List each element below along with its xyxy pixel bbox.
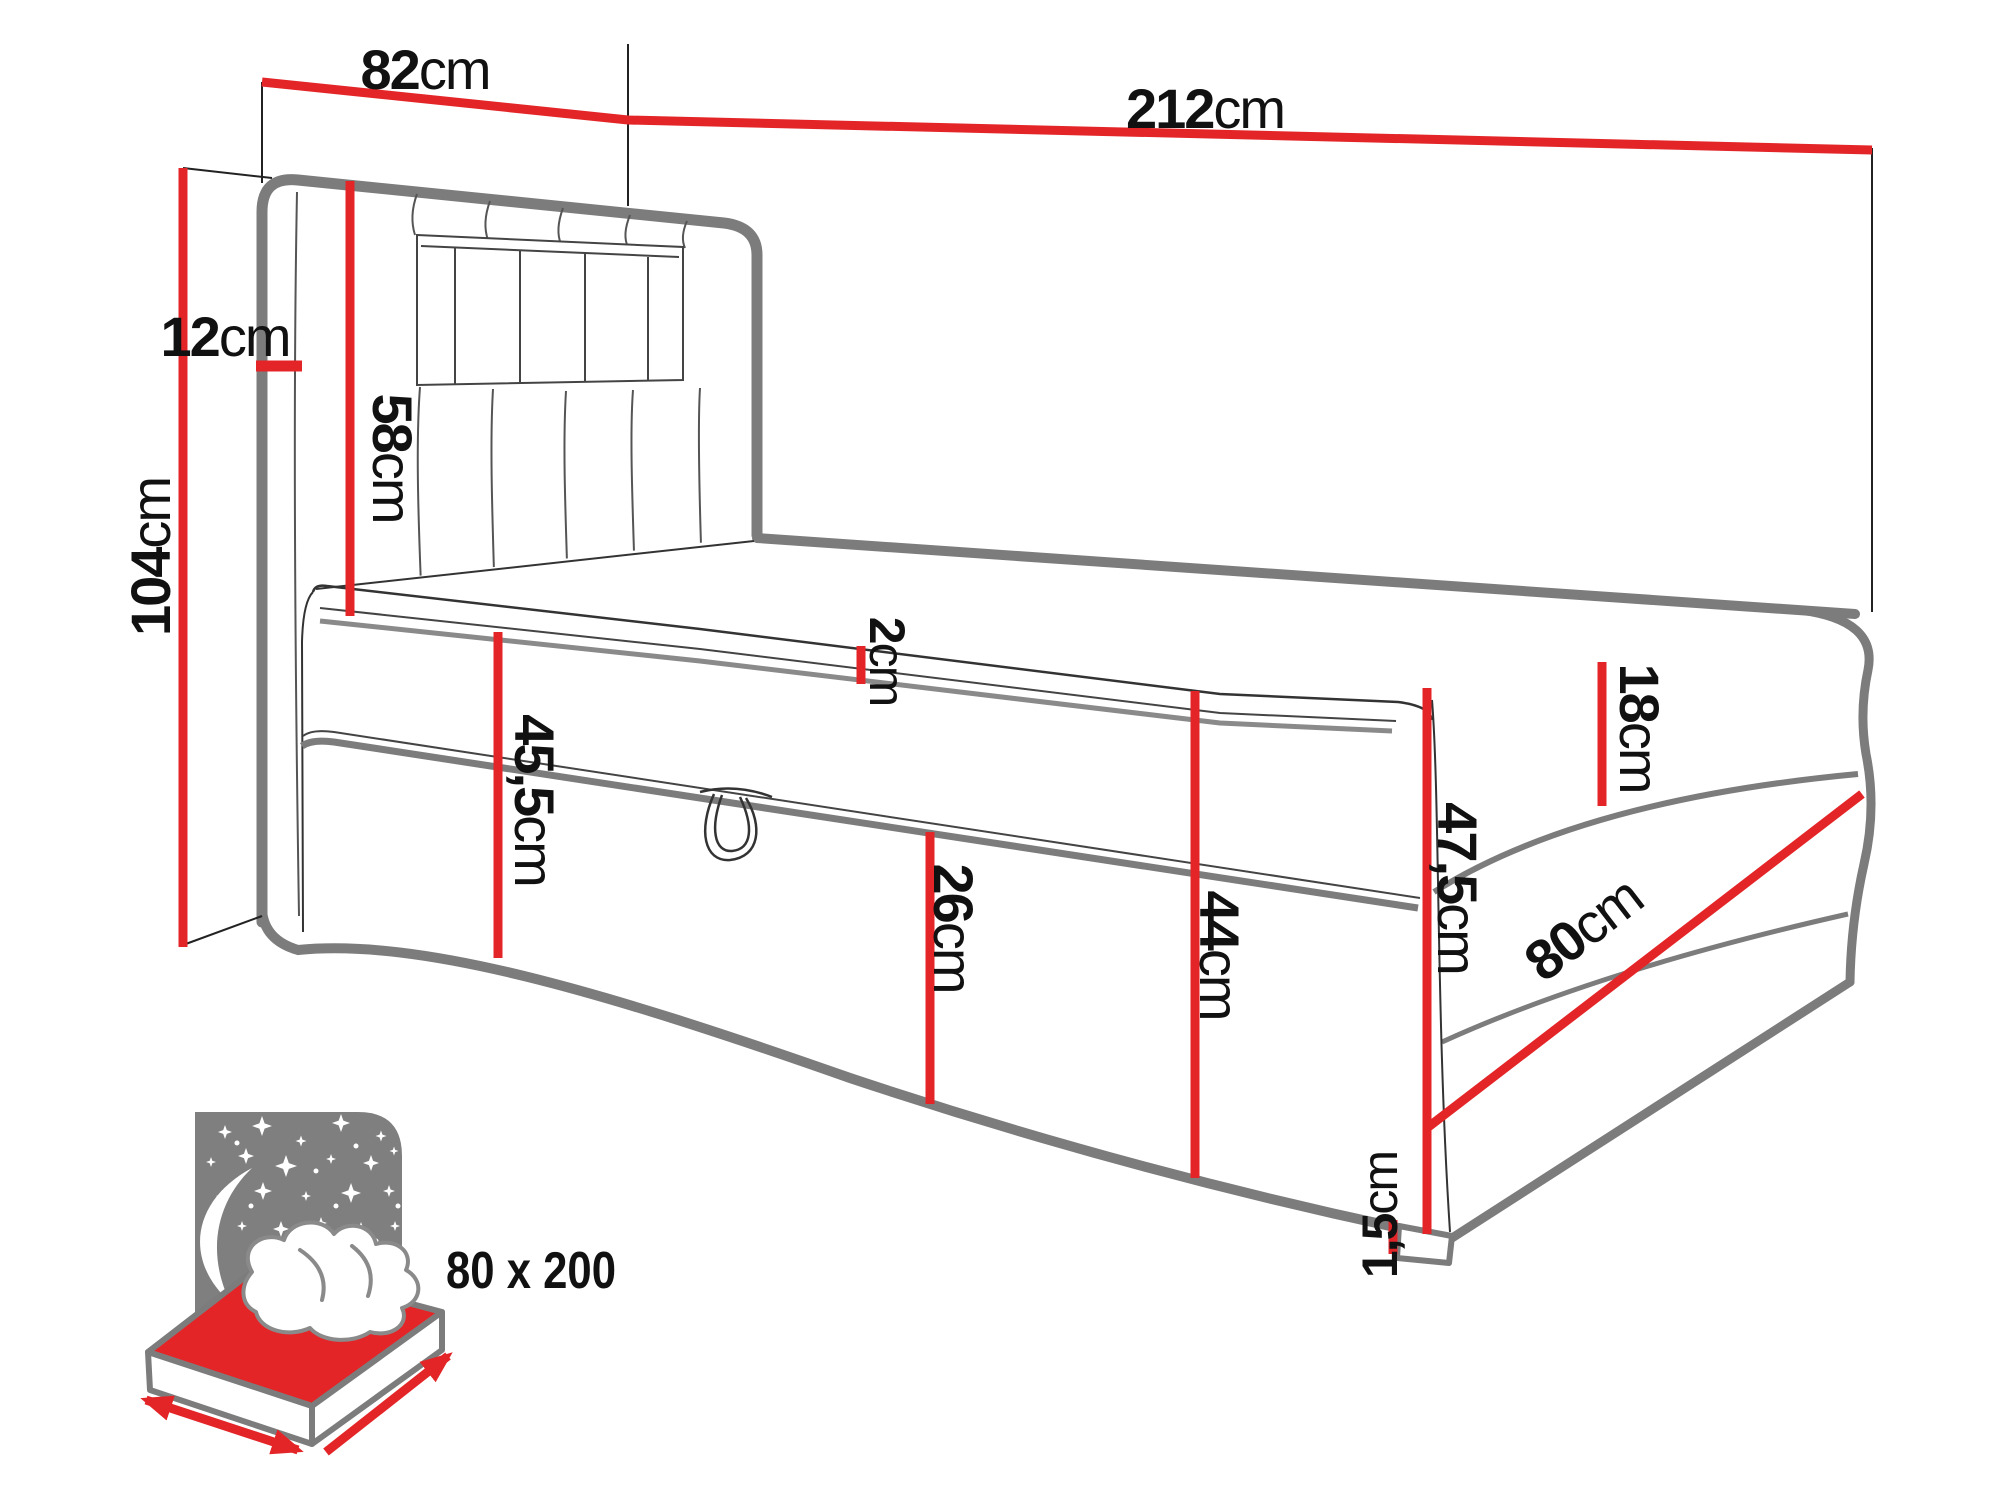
icon-bed xyxy=(146,1223,448,1452)
ext-line-104-top xyxy=(183,168,272,178)
label-104cm: 104cm xyxy=(119,478,182,636)
label-47-5cm: 47,5cm xyxy=(1426,802,1489,974)
label-44cm: 44cm xyxy=(1188,891,1251,1020)
label-2cm: 2cm xyxy=(859,617,915,705)
label-12cm: 12cm xyxy=(161,305,290,368)
label-58cm: 58cm xyxy=(361,394,424,523)
label-18cm: 18cm xyxy=(1608,664,1671,793)
technical-drawing: 82cm 212cm 104cm 12cm 58cm 2cm 45,5cm 26… xyxy=(0,0,2000,1500)
size-icon: 80 x 200 xyxy=(146,1112,616,1452)
dim-82-212-line xyxy=(262,82,1872,150)
size-badge-label: 80 x 200 xyxy=(446,1242,616,1300)
label-212cm: 212cm xyxy=(1126,77,1284,140)
label-26cm: 26cm xyxy=(922,864,985,993)
bed-dimension-diagram: 82cm 212cm 104cm 12cm 58cm 2cm 45,5cm 26… xyxy=(0,0,2000,1500)
headboard-panel xyxy=(417,235,683,385)
label-82cm: 82cm xyxy=(361,38,490,101)
ext-line-104-bottom xyxy=(183,916,262,945)
label-1-5cm: 1,5cm xyxy=(1352,1152,1408,1278)
label-45-5cm: 45,5cm xyxy=(503,714,566,886)
